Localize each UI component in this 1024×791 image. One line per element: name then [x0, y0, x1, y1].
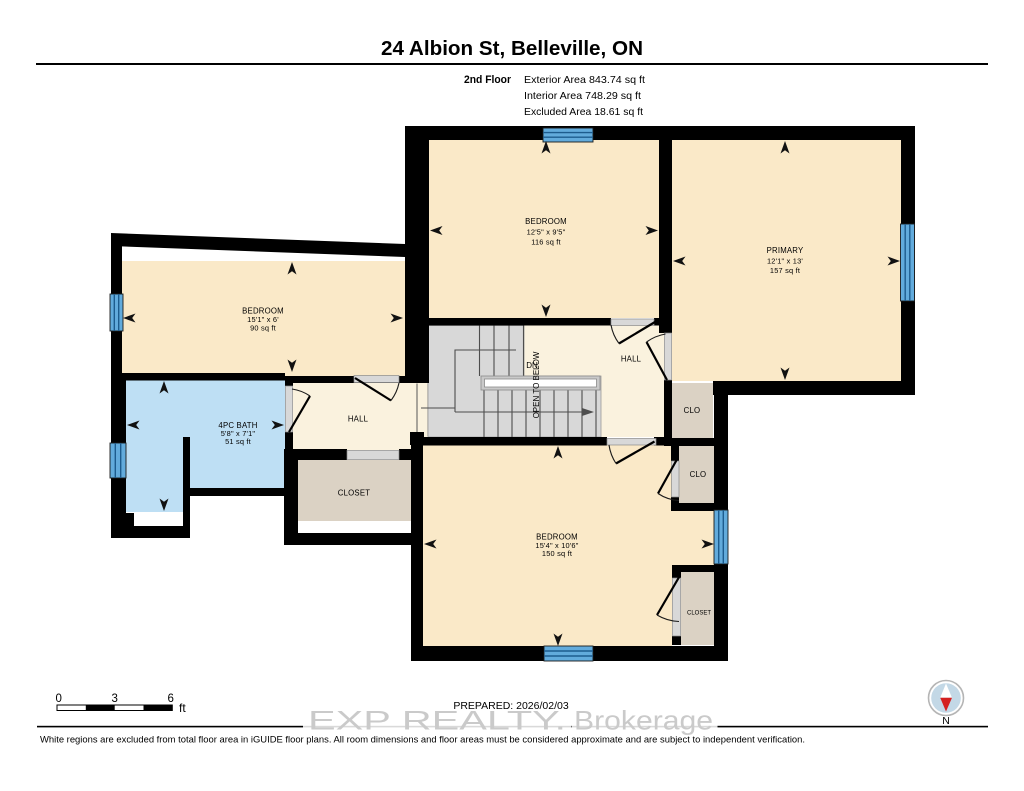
- svg-text:6: 6: [167, 693, 173, 705]
- svg-text:OPEN TO BELOW: OPEN TO BELOW: [532, 351, 541, 418]
- svg-text:CLO: CLO: [690, 470, 707, 479]
- svg-text:N: N: [942, 715, 950, 727]
- svg-text:PRIMARY: PRIMARY: [767, 246, 804, 255]
- svg-text:CLO: CLO: [684, 406, 701, 415]
- svg-text:BEDROOM: BEDROOM: [525, 217, 567, 226]
- svg-text:3: 3: [111, 693, 117, 705]
- svg-text:12'5" x 9'5": 12'5" x 9'5": [527, 228, 566, 237]
- svg-text:12'1" x 13': 12'1" x 13': [767, 257, 803, 266]
- svg-text:HALL: HALL: [621, 355, 642, 364]
- svg-text:HALL: HALL: [348, 415, 369, 424]
- svg-text:CLOSET: CLOSET: [338, 489, 370, 498]
- svg-text:White regions are excluded fro: White regions are excluded from total fl…: [40, 735, 805, 745]
- svg-text:51 sq ft: 51 sq ft: [225, 437, 251, 446]
- svg-text:Excluded Area 18.61 sq ft: Excluded Area 18.61 sq ft: [524, 106, 643, 118]
- svg-text:157 sq ft: 157 sq ft: [770, 266, 800, 275]
- svg-text:90 sq ft: 90 sq ft: [250, 324, 276, 333]
- svg-text:150 sq ft: 150 sq ft: [542, 549, 572, 558]
- svg-text:CLOSET: CLOSET: [687, 611, 711, 617]
- svg-text:Exterior Area 843.74 sq ft: Exterior Area 843.74 sq ft: [524, 74, 645, 86]
- svg-text:24 Albion St, Belleville, ON: 24 Albion St, Belleville, ON: [381, 38, 643, 60]
- svg-text:ft: ft: [179, 701, 186, 715]
- svg-text:116 sq ft: 116 sq ft: [531, 238, 561, 247]
- svg-text:2nd Floor: 2nd Floor: [464, 74, 512, 86]
- svg-text:Brokerage: Brokerage: [574, 706, 713, 736]
- svg-text:Interior Area 748.29 sq ft: Interior Area 748.29 sq ft: [524, 90, 641, 102]
- svg-text:PREPARED: 2026/02/03: PREPARED: 2026/02/03: [453, 700, 569, 712]
- svg-text:0: 0: [55, 693, 61, 705]
